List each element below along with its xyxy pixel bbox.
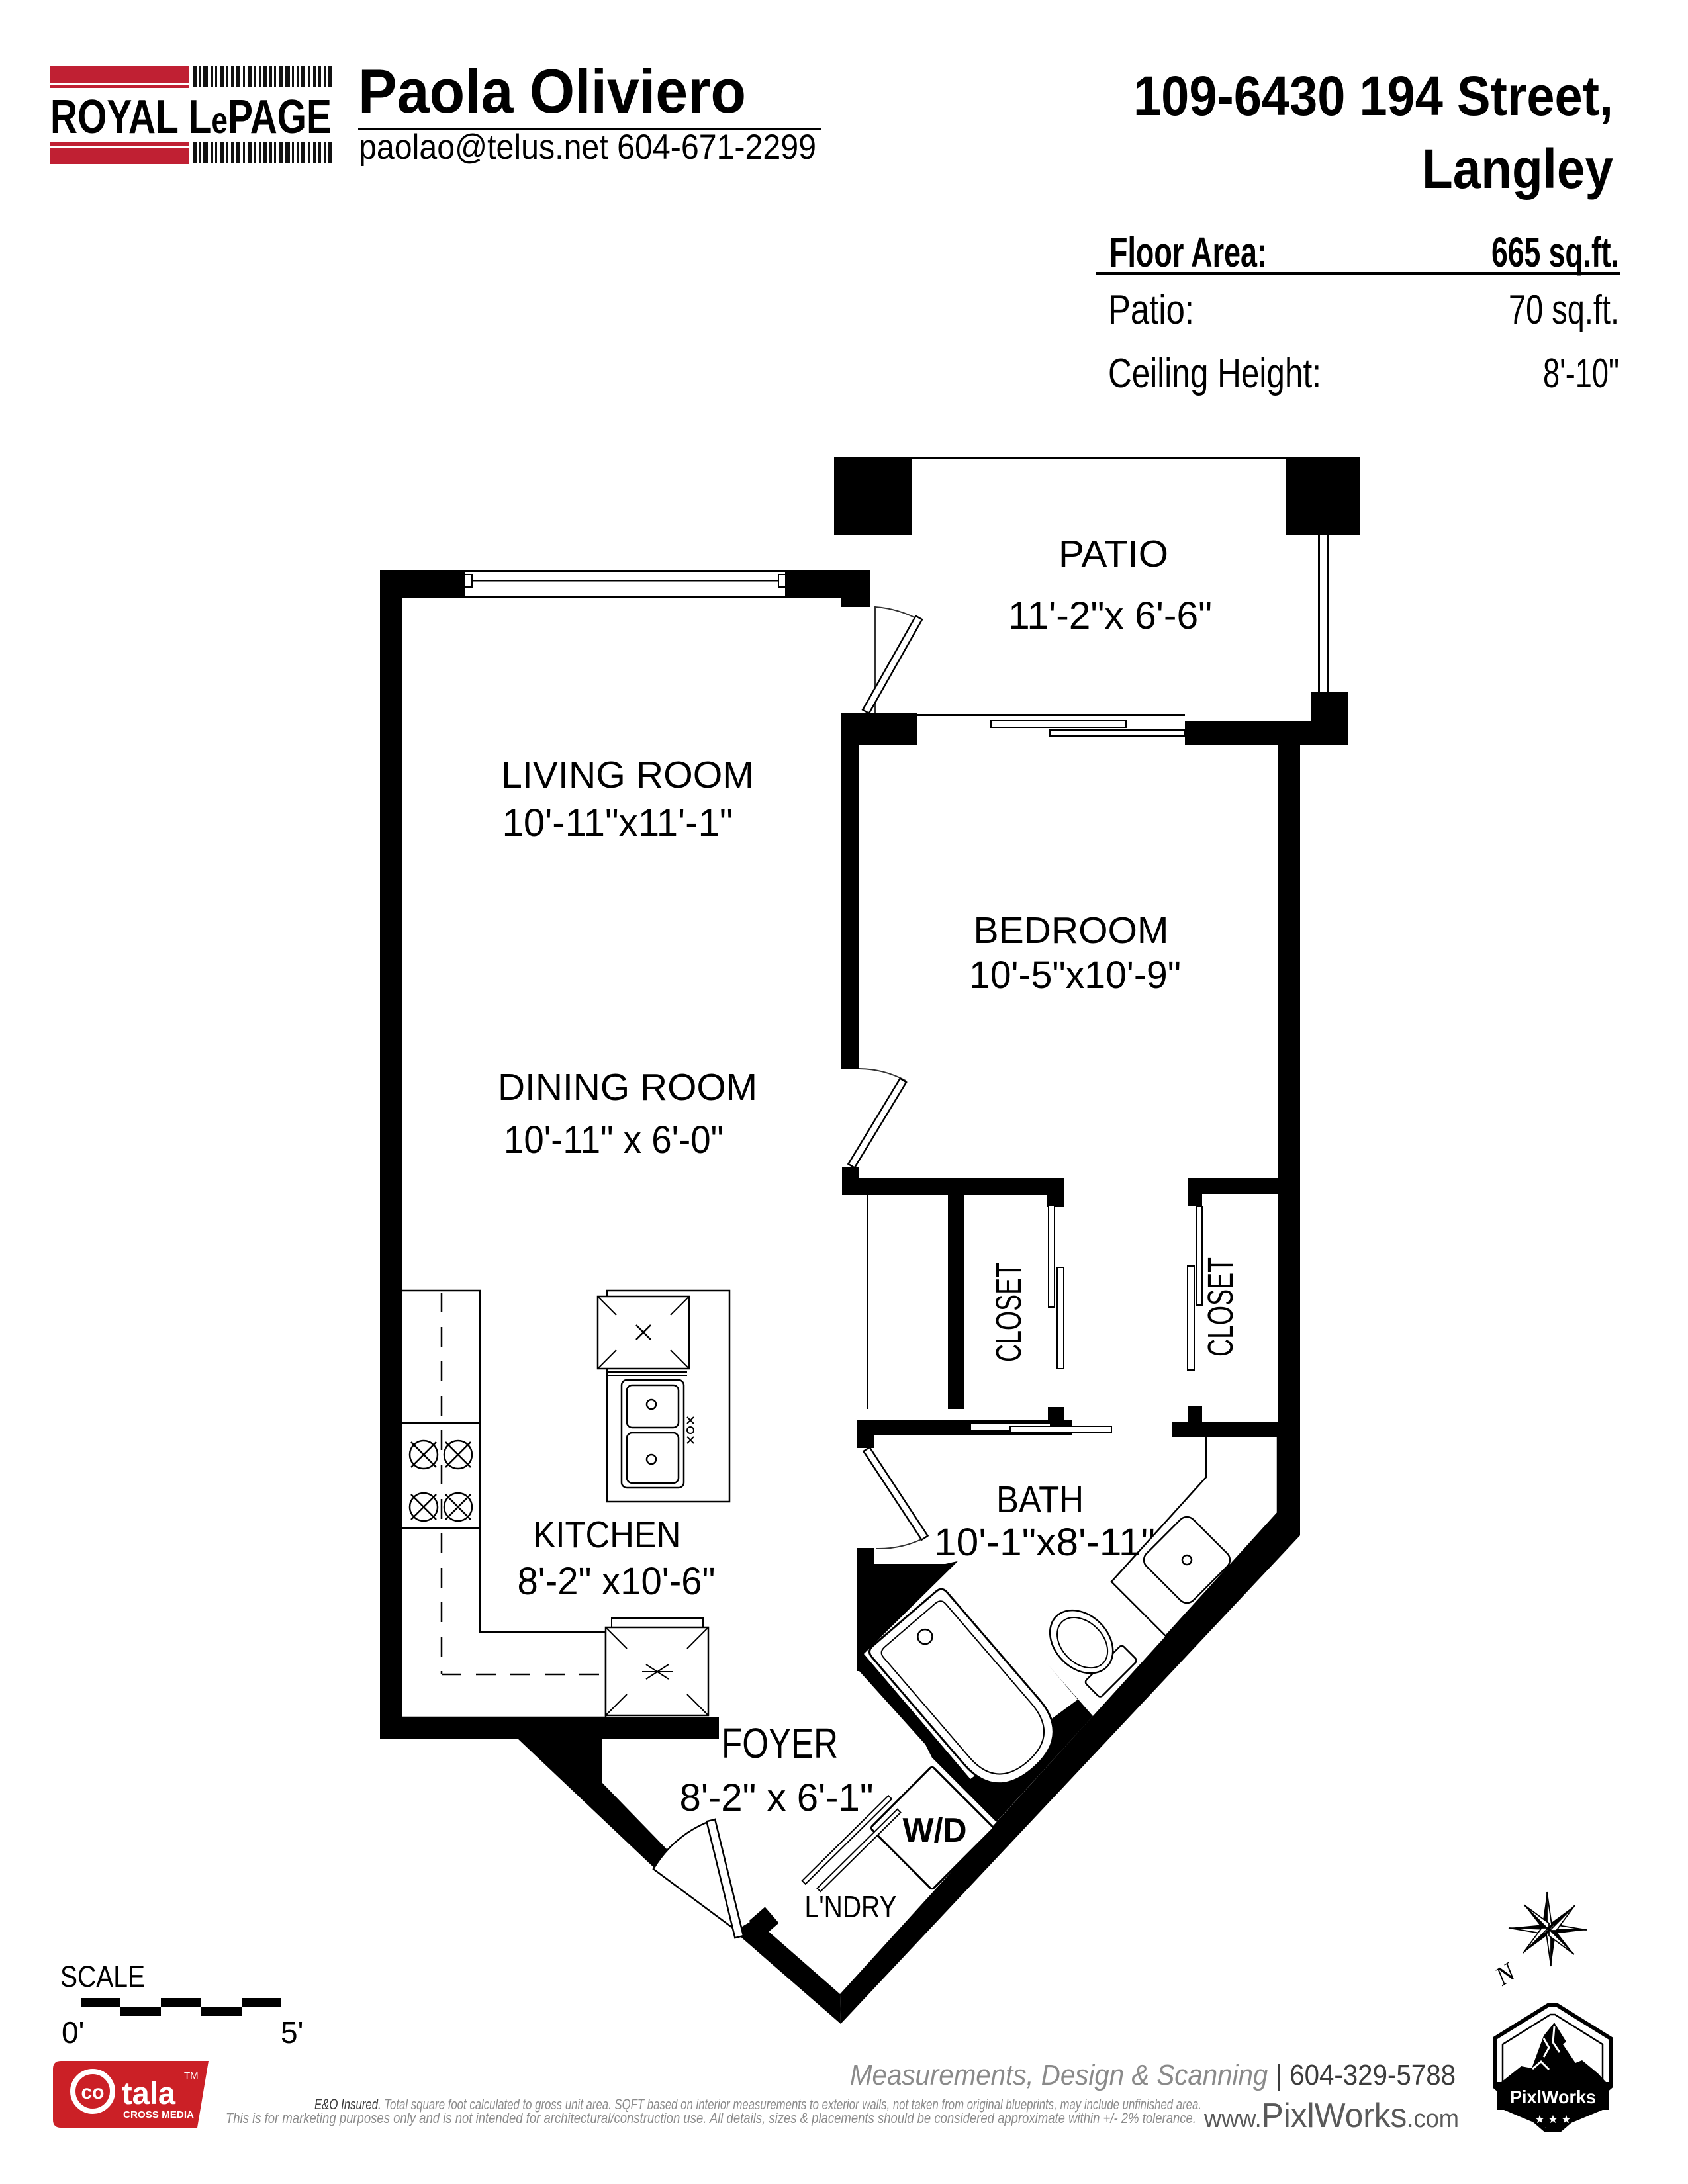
svg-text:L'NDRY: L'NDRY (805, 1889, 897, 1924)
svg-text:Patio:: Patio: (1108, 287, 1194, 333)
svg-text:co: co (81, 2081, 104, 2103)
svg-text:8'-10": 8'-10" (1543, 351, 1619, 396)
svg-text:CROSS MEDIA: CROSS MEDIA (123, 2109, 194, 2120)
svg-text:0': 0' (62, 2015, 84, 2050)
svg-text:CLOSET: CLOSET (989, 1263, 1029, 1362)
svg-text:tala: tala (122, 2075, 176, 2111)
svg-text:5': 5' (281, 2015, 303, 2050)
svg-text:LIVING ROOM: LIVING ROOM (501, 754, 754, 796)
svg-text:109-6430 194 Street,: 109-6430 194 Street, (1133, 65, 1613, 127)
svg-text:Paola Oliviero: Paola Oliviero (358, 56, 746, 126)
svg-text:SCALE: SCALE (60, 1960, 145, 1993)
svg-text:KITCHEN: KITCHEN (534, 1514, 681, 1556)
svg-text:★ ★ ★: ★ ★ ★ (1534, 2113, 1571, 2126)
svg-text:10'-5"x10'-9": 10'-5"x10'-9" (969, 954, 1181, 997)
svg-text:11'-2"x 6'-6": 11'-2"x 6'-6" (1008, 594, 1212, 637)
svg-text:10'-1"x8'-11": 10'-1"x8'-11" (934, 1521, 1155, 1564)
svg-text:DINING ROOM: DINING ROOM (498, 1066, 757, 1109)
svg-text:PATIO: PATIO (1058, 533, 1168, 575)
svg-text:10'-11"x11'-1": 10'-11"x11'-1" (502, 801, 733, 844)
svg-text:CLOSET: CLOSET (1201, 1257, 1241, 1357)
svg-text:BEDROOM: BEDROOM (974, 909, 1169, 952)
svg-text:665 sq.ft.: 665 sq.ft. (1491, 228, 1619, 276)
svg-text:10'-11" x 6'-0": 10'-11" x 6'-0" (504, 1118, 724, 1161)
svg-text:PixlWorks: PixlWorks (1510, 2087, 1596, 2107)
svg-text:8'-2" x10'-6": 8'-2" x10'-6" (518, 1560, 716, 1603)
svg-text:Measurements, Design & Scannin: Measurements, Design & Scanning | 604-32… (850, 2059, 1456, 2091)
svg-text:paolao@telus.net 604-671-2299: paolao@telus.net 604-671-2299 (359, 128, 816, 167)
svg-text:70 sq.ft.: 70 sq.ft. (1509, 287, 1619, 333)
svg-text:TM: TM (184, 2070, 199, 2081)
svg-text:W/D: W/D (903, 1811, 967, 1850)
svg-text:FOYER: FOYER (722, 1719, 838, 1767)
svg-text:BATH: BATH (996, 1479, 1084, 1521)
svg-text:Ceiling Height:: Ceiling Height: (1108, 351, 1321, 396)
svg-text:Floor Area:: Floor Area: (1109, 228, 1267, 276)
svg-text:Langley: Langley (1422, 138, 1613, 200)
svg-text:8'-2" x 6'-1": 8'-2" x 6'-1" (680, 1776, 874, 1819)
svg-text:This is for marketing purposes: This is for marketing purposes only and … (226, 2110, 1196, 2126)
svg-text:ROYAL LePAGE: ROYAL LePAGE (50, 91, 332, 144)
